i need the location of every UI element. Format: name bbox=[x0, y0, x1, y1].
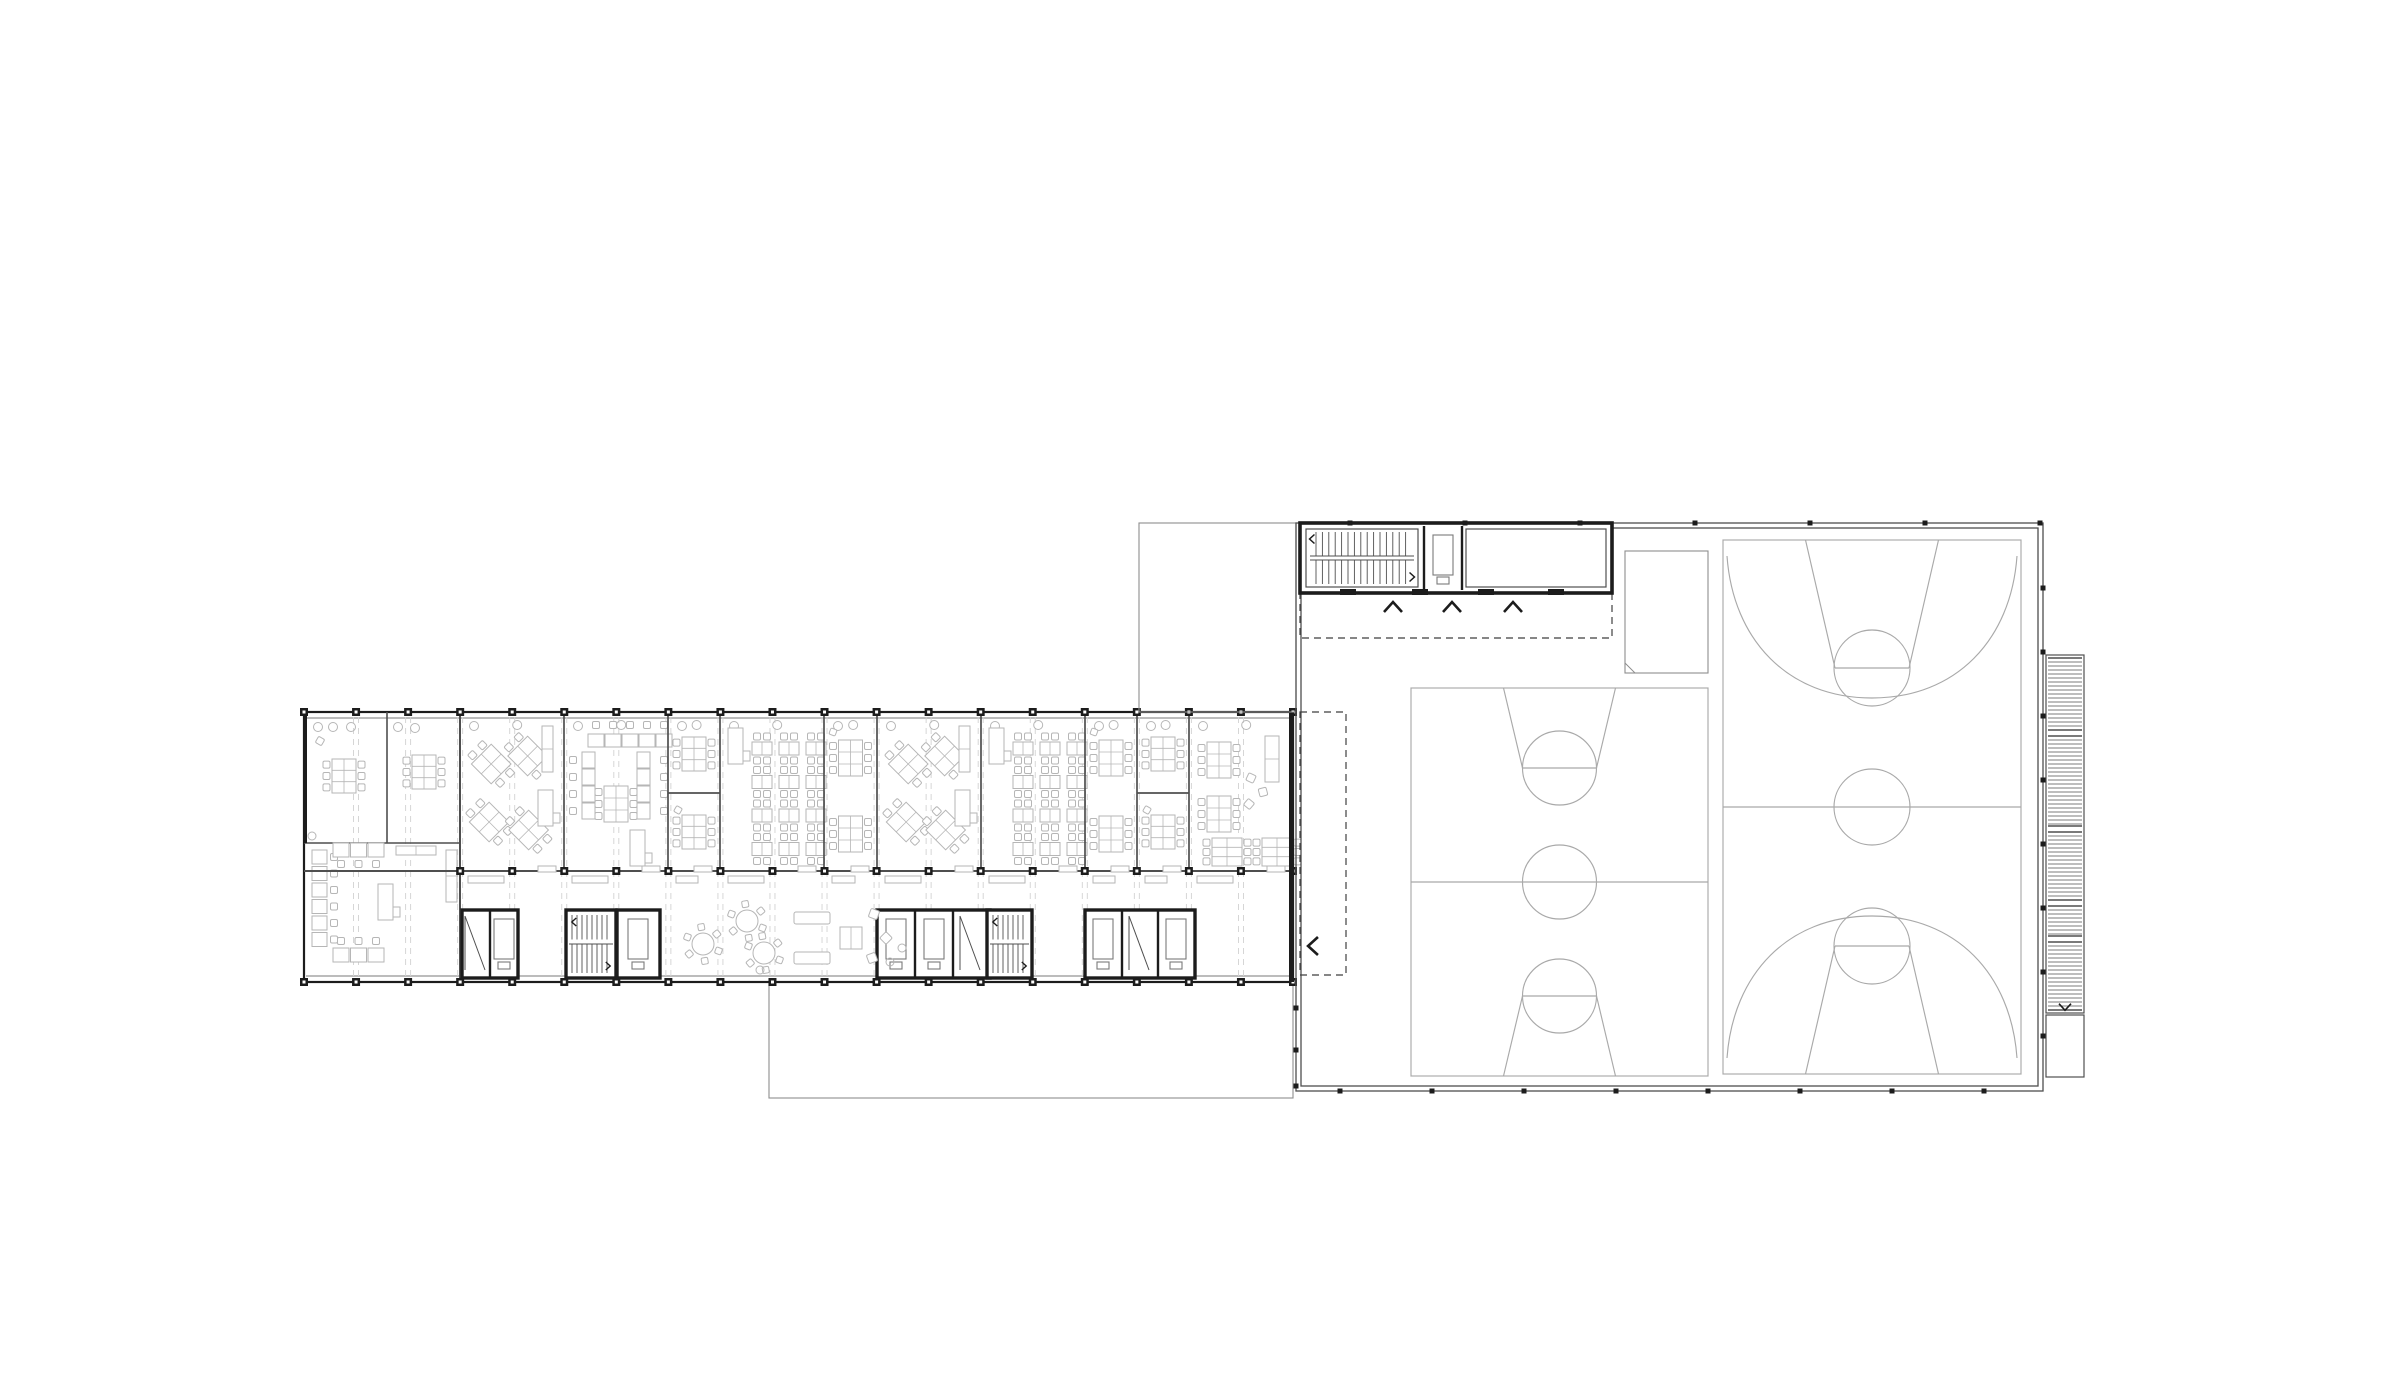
elevator-core-1 bbox=[462, 910, 518, 978]
dashed-zones bbox=[1300, 593, 1612, 975]
terrace-outline bbox=[769, 982, 1293, 1098]
direction-arrows bbox=[1308, 602, 1522, 955]
basketball-court-left bbox=[1411, 688, 1708, 1076]
courtyard-outline bbox=[1139, 523, 1296, 712]
stair-core-5 bbox=[987, 910, 1032, 978]
floor-plan-page: Architectural floor plan: classroom wing… bbox=[0, 0, 2400, 1381]
classroom-wing bbox=[300, 708, 1301, 1098]
elevator-core-6 bbox=[1085, 910, 1195, 978]
equipment-room bbox=[1625, 551, 1708, 673]
elevator-core-3 bbox=[617, 910, 660, 978]
stair-core-2 bbox=[566, 910, 616, 978]
floor-plan-svg bbox=[0, 0, 2400, 1381]
basketball-court-right bbox=[1723, 540, 2021, 1074]
external-ramp bbox=[2046, 655, 2084, 1077]
entry-stair-block bbox=[1300, 523, 1612, 595]
elevator-core-4 bbox=[877, 910, 990, 978]
